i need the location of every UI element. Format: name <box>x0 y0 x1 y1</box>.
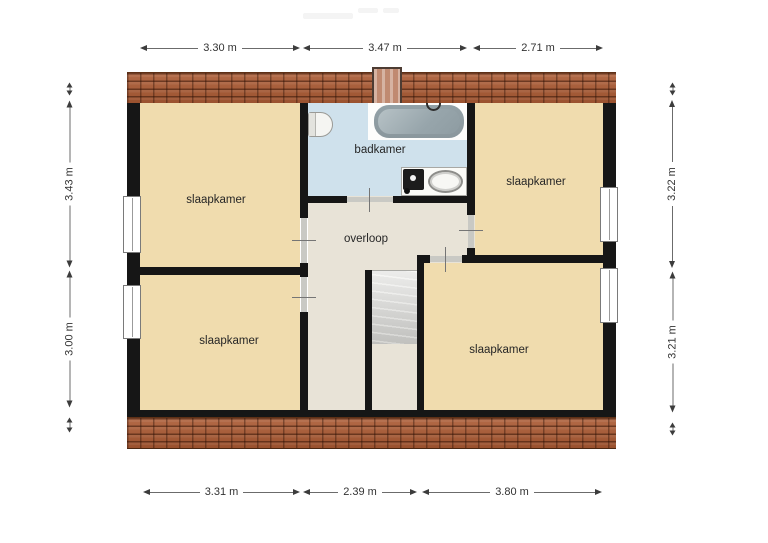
arrowhead-left-icon <box>669 90 675 95</box>
dimension-line <box>407 48 460 49</box>
arrowhead-right-icon <box>669 82 675 87</box>
dimension-line <box>69 422 70 427</box>
room-floor-slaapkamer-tl <box>140 103 300 267</box>
window <box>123 285 141 339</box>
door-tick <box>369 188 370 212</box>
arrowhead-right-icon <box>293 45 300 51</box>
door-tick <box>445 247 446 272</box>
dimension-label: 2.71 m <box>516 41 560 55</box>
arrowhead-right-icon <box>66 100 72 107</box>
dimension-label: 3.47 m <box>363 41 407 55</box>
arrowhead-left-icon <box>66 90 72 95</box>
arrowhead-right-icon <box>669 100 675 107</box>
dimension-right-2: 3.21 m <box>665 271 679 412</box>
dimension-label: 3.22 m <box>665 162 679 206</box>
arrowhead-right-icon <box>410 489 417 495</box>
watermark <box>383 8 399 13</box>
arrowhead-right-icon <box>293 489 300 495</box>
dimension-line <box>147 48 198 49</box>
arrowhead-right-icon <box>460 45 467 51</box>
wall-segment <box>603 323 616 417</box>
dimension-line <box>69 205 70 260</box>
door-opening <box>430 256 462 262</box>
dimension-line <box>150 492 200 493</box>
floorplan-canvas: slaapkamer slaapkamer slaapkamer slaapka… <box>0 0 768 543</box>
dimension-line <box>672 363 673 405</box>
toilet-tank <box>309 113 316 136</box>
dimension-line <box>69 277 70 317</box>
watermark <box>358 8 378 13</box>
drain-dot-icon <box>404 188 410 194</box>
wall-segment <box>127 103 140 196</box>
wall-segment <box>300 312 308 410</box>
wall-segment <box>393 196 475 203</box>
dimension-top-1: 3.30 m <box>140 41 300 55</box>
roof-marker-top-left <box>62 82 76 95</box>
roof-marker-bottom-right <box>665 422 679 435</box>
dimension-right-1: 3.22 m <box>665 100 679 268</box>
dimension-label: 3.00 m <box>62 317 76 361</box>
window <box>600 268 618 323</box>
door-tick <box>292 240 316 241</box>
arrowhead-right-icon <box>66 417 72 422</box>
window <box>123 196 141 253</box>
room-label-slaapkamer-br: slaapkamer <box>469 344 528 356</box>
door-opening <box>301 277 307 312</box>
dimension-line <box>560 48 596 49</box>
room-label-overloop: overloop <box>344 233 388 245</box>
arrowhead-left-icon <box>66 427 72 432</box>
dimension-bottom-2: 2.39 m <box>303 485 417 499</box>
dimension-line <box>242 48 293 49</box>
room-floor-slaapkamer-br <box>424 263 603 410</box>
window <box>600 187 618 242</box>
wall-segment <box>300 196 347 203</box>
dimension-bottom-1: 3.31 m <box>143 485 300 499</box>
dimension-left-1: 3.43 m <box>62 100 76 267</box>
dimension-line <box>69 360 70 400</box>
dimension-line <box>310 492 338 493</box>
dimension-line <box>382 492 410 493</box>
dimension-label: 3.31 m <box>200 485 244 499</box>
dimension-label: 3.30 m <box>198 41 242 55</box>
door-opening <box>468 215 474 248</box>
bathtub-basin <box>378 109 460 134</box>
arrowhead-left-icon <box>143 489 150 495</box>
arrowhead-left-icon <box>473 45 480 51</box>
roof-band-bottom <box>127 417 616 449</box>
dimension-label: 2.39 m <box>338 485 382 499</box>
wall-segment <box>603 103 616 187</box>
door-tick <box>292 297 316 298</box>
wall-segment <box>462 255 616 263</box>
washbasin <box>428 170 463 193</box>
arrowhead-left-icon <box>422 489 429 495</box>
watermark <box>303 13 353 19</box>
dimension-line <box>429 492 490 493</box>
arrowhead-right-icon <box>66 82 72 87</box>
wall-segment <box>365 270 372 417</box>
dimension-top-2: 3.47 m <box>303 41 467 55</box>
dimension-line <box>534 492 595 493</box>
arrowhead-left-icon <box>303 45 310 51</box>
roof-marker-bottom-left <box>62 417 76 432</box>
wall-segment <box>127 267 308 275</box>
dimension-line <box>672 107 673 162</box>
dimension-line <box>480 48 516 49</box>
dimension-line <box>672 278 673 320</box>
room-label-badkamer: badkamer <box>354 144 405 156</box>
dimension-label: 3.21 m <box>665 320 679 364</box>
arrowhead-right-icon <box>669 422 675 427</box>
arrowhead-right-icon <box>595 489 602 495</box>
wall-segment <box>467 103 475 215</box>
dimension-line <box>310 48 363 49</box>
room-label-slaapkamer-bl: slaapkamer <box>199 335 258 347</box>
chimney <box>372 67 402 107</box>
dimension-label: 3.43 m <box>62 162 76 206</box>
arrowhead-right-icon <box>596 45 603 51</box>
arrowhead-right-icon <box>669 271 675 278</box>
dimension-label: 3.80 m <box>490 485 534 499</box>
toilet <box>308 112 333 137</box>
dimension-top-3: 2.71 m <box>473 41 603 55</box>
arrowhead-left-icon <box>66 400 72 407</box>
dimension-left-2: 3.00 m <box>62 270 76 407</box>
door-opening <box>347 197 393 202</box>
arrowhead-left-icon <box>669 261 675 268</box>
dimension-line <box>243 492 293 493</box>
roof-marker-top-right <box>665 82 679 95</box>
room-label-slaapkamer-tl: slaapkamer <box>186 194 245 206</box>
room-label-slaapkamer-tr: slaapkamer <box>506 176 565 188</box>
wall-segment <box>417 255 424 417</box>
arrowhead-left-icon <box>303 489 310 495</box>
dimension-line <box>69 107 70 162</box>
wall-segment <box>127 338 140 417</box>
arrowhead-left-icon <box>669 405 675 412</box>
arrowhead-left-icon <box>669 430 675 435</box>
door-tick <box>459 230 483 231</box>
dimension-bottom-3: 3.80 m <box>422 485 602 499</box>
arrowhead-left-icon <box>66 260 72 267</box>
bathtub <box>374 105 464 138</box>
arrowhead-left-icon <box>140 45 147 51</box>
dimension-line <box>672 206 673 261</box>
arrowhead-right-icon <box>66 270 72 277</box>
boiler-knob-icon <box>410 175 416 181</box>
staircase <box>372 270 417 344</box>
